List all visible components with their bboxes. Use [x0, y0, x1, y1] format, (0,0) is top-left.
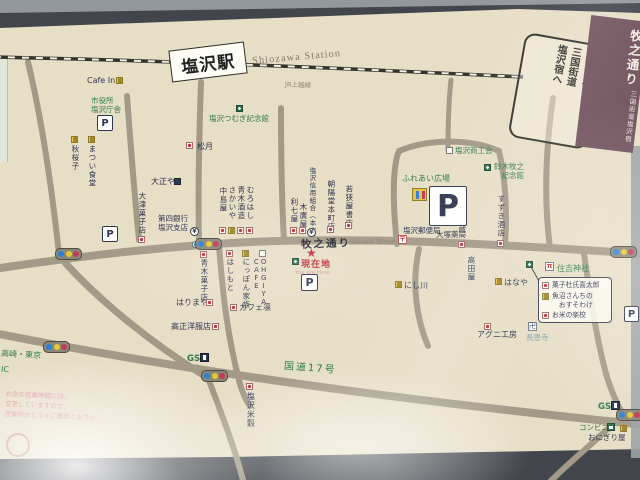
callout-item-1: 菓子杜氏喜太郎 — [542, 281, 609, 290]
wakasaya-shoten-icon — [345, 222, 352, 229]
poi-shuoshi: 秋桜子 — [71, 145, 79, 171]
poi-cafe-rin: カフェ凛 — [239, 303, 271, 313]
traffic-signal-icon-6 — [616, 409, 640, 421]
nishikawa-icon — [395, 281, 402, 288]
poi-taishoya: 大正や — [151, 177, 175, 187]
shiozawa-beikoku-icon — [246, 383, 253, 390]
poi-rishichiya: 利七屋 — [290, 198, 298, 224]
poi-fureai-hiroba: ふれあい広場 — [402, 174, 450, 184]
poi-nishikawa: にし川 — [404, 281, 428, 291]
poi-agni-kobo: アグニ工房 — [477, 330, 517, 340]
tsumugi-kinenkan-icon — [236, 105, 243, 112]
nakajimaya-icon — [219, 227, 226, 234]
poi-dir-ic: IC — [1, 365, 9, 375]
poi-matsui-shokudo: まつい食堂 — [88, 145, 96, 188]
poi-takadaya: 高田屋 — [467, 256, 475, 282]
ohgiya-cafe-icon — [259, 250, 266, 257]
callout-marker-icon — [526, 261, 533, 268]
traffic-signal-icon-3 — [610, 246, 637, 258]
poi-cafe-in: Cafe In — [87, 76, 115, 86]
poi-suzuki-bokushi-kinenkan: 鈴木牧之 記念館 — [494, 162, 524, 180]
poi-gs-west: GS — [187, 354, 200, 364]
poi-kihiroya: 木廣屋 — [299, 203, 307, 229]
callout-item-1-label: 菓子杜氏喜太郎 — [552, 281, 600, 290]
rishichiya-icon — [290, 227, 297, 234]
poi-suzuki-saketen: すずき酒店 — [497, 195, 505, 238]
nippon-kazoku-icon — [242, 250, 249, 257]
poi-shogetsu: 松月 — [197, 142, 213, 152]
conbini-icon — [607, 423, 615, 431]
poi-aoki-shuzo: 青木酒造 — [237, 186, 245, 220]
poi-gs-east: GS — [598, 402, 611, 412]
traffic-signal-icon-2 — [195, 238, 222, 250]
callout-item-1-icon — [542, 282, 549, 289]
cafe-rin-icon — [230, 304, 237, 311]
taishoya-icon — [174, 178, 181, 185]
stamp-logo — [6, 433, 30, 457]
parking-icon-5: P — [624, 306, 639, 322]
parking-icon-2: P — [429, 186, 467, 226]
rail-line-label: JR上越線 — [285, 79, 311, 90]
murohashi-icon — [246, 227, 253, 234]
poi-harimaya: はりまや — [176, 298, 208, 308]
callout-item-2: 魚沼さんちの おすそわけ — [542, 292, 609, 310]
harimaya-icon — [206, 299, 213, 306]
parking-icon-4: P — [301, 274, 318, 291]
poi-dir-takasaki-tokyo: 高崎・東京 — [1, 349, 41, 361]
shokokai-icon — [446, 147, 453, 154]
poi-sakaiya: さかいや — [228, 186, 236, 220]
shop-callout-box: 菓子杜氏喜太郎魚沼さんちの おすそわけお米の楽校 — [538, 277, 612, 323]
hanaya-icon — [495, 278, 502, 285]
notice-text: お店の営業時間には、 変更していますので、 営業中かどうかご確認ください — [4, 389, 96, 423]
choonji-icon: 卍 — [528, 322, 537, 331]
current-location-label-en: You are Here — [295, 270, 330, 276]
aoki-kashiten-icon — [200, 251, 207, 258]
parking-icon-1: P — [97, 115, 113, 131]
shuoshi-icon — [71, 136, 78, 143]
cafe-in-icon — [116, 77, 123, 84]
poi-hanaya: はなや — [504, 278, 528, 288]
sumiyoshi-jinja-icon: π — [545, 262, 554, 271]
otsu-kashiten-icon — [138, 236, 145, 243]
parking-icon-3: P — [102, 226, 118, 242]
sakaiya-icon — [228, 227, 235, 234]
aoki-shuzo-icon — [237, 227, 244, 234]
title-banner-large: 牧之通り — [585, 27, 640, 87]
restroom-icon — [412, 188, 427, 201]
hashimoto-icon — [226, 250, 233, 257]
traffic-signal-icon-1 — [55, 248, 82, 260]
koshihikari-kura-icon — [458, 241, 465, 248]
poi-murohashi: むろはし — [246, 186, 254, 220]
choyodo-icon — [327, 226, 334, 233]
poi-choonji: 長恩寺 — [526, 333, 549, 342]
poi-shokokai: 塩沢商工会 — [455, 146, 493, 155]
poi-tsumugi-kinenkan: 塩沢つむぎ記念館 — [209, 114, 269, 123]
poi-post-office: 塩沢郵便局 — [403, 226, 441, 235]
suzuki-bokushi-kinenkan-icon — [484, 164, 491, 171]
traffic-signal-icon-5 — [43, 341, 70, 353]
map-board-photo: 塩沢駅 Shiozawa Station JR上越線 牧之通り Bokushi … — [0, 0, 640, 480]
title-banner-small: 三国街道塩沢宿 — [578, 84, 638, 143]
onigiriya-icon — [620, 425, 627, 432]
matsui-shokudo-icon — [88, 136, 95, 143]
poi-otsu-kashiten: 大津菓子店 — [138, 192, 146, 235]
bokushi-street-label-en: Bokushi Street — [349, 238, 396, 247]
kihiroya-icon — [299, 227, 306, 234]
callout-item-3-icon — [542, 312, 549, 319]
gs-west-icon — [200, 353, 209, 362]
poi-nakajimaya: 中島屋 — [219, 187, 227, 213]
poi-takasho-yofukuten: 高正洋服店 — [171, 322, 211, 332]
poi-daishi-bank: 第四銀行 塩沢支店 — [158, 214, 188, 232]
poi-hashimoto: はしもと — [226, 258, 234, 292]
poi-sumiyoshi-jinja: 住吉神社 — [557, 264, 589, 274]
poi-aoki-kashiten: 青木菓子店 — [200, 259, 208, 302]
traffic-signal-icon-4 — [201, 370, 228, 382]
current-location-icon — [292, 258, 299, 265]
callout-item-3: お米の楽校 — [542, 311, 609, 320]
callout-item-3-label: お米の楽校 — [552, 311, 586, 320]
current-location-label: 現在地 — [301, 257, 331, 270]
poi-ohgiya-cafe: OHGIYA CAFE — [252, 258, 267, 306]
daishi-bank-icon: ¥ — [190, 227, 199, 236]
post-office-icon: 〒 — [398, 235, 407, 244]
poi-onigiriya: おにぎり屋 — [588, 433, 626, 442]
callout-item-2-label: 魚沼さんちの おすそわけ — [552, 292, 593, 310]
poi-shiozawa-beikoku: 塩沢米穀 — [246, 392, 254, 428]
takasho-yofukuten-icon — [212, 323, 219, 330]
poi-conbini: コンビニ — [579, 423, 609, 432]
poi-choyodo: 朝陽堂本町店 — [327, 180, 335, 231]
poi-city-office: 市役所 塩沢庁舎 — [91, 96, 121, 114]
shogetsu-icon — [186, 142, 193, 149]
suzuki-saketen-icon — [497, 240, 504, 247]
callout-item-2-icon — [542, 293, 549, 300]
agni-kobo-icon — [484, 323, 491, 330]
poi-nippon-kazoku: にっぽん家族 — [242, 258, 250, 309]
